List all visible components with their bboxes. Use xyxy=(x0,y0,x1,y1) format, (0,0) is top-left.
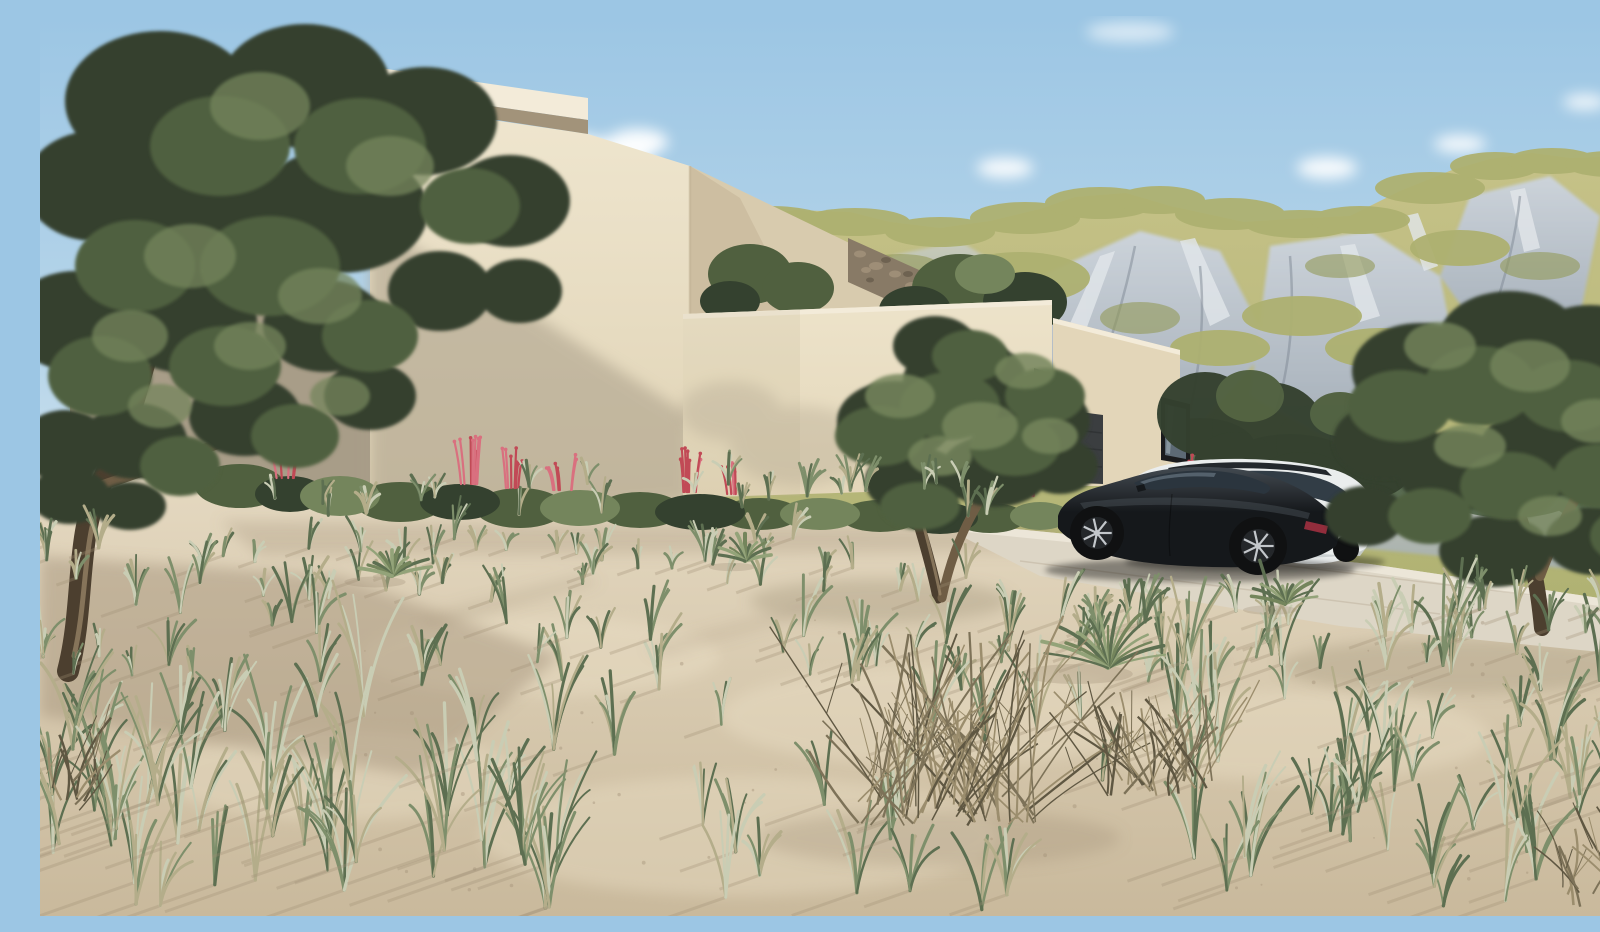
pebble xyxy=(1526,872,1528,874)
pebble xyxy=(838,631,842,635)
pebble xyxy=(774,768,777,771)
pebble xyxy=(617,793,620,796)
pebble xyxy=(1481,672,1485,676)
pebble xyxy=(1312,681,1316,685)
pebble xyxy=(1368,686,1370,688)
pebble xyxy=(990,838,993,841)
cloud xyxy=(1434,135,1486,153)
pebble xyxy=(559,747,562,750)
rendering-canvas xyxy=(40,16,1600,916)
pebble xyxy=(468,888,471,891)
pebble xyxy=(680,662,684,666)
pebble xyxy=(461,792,465,796)
pebble xyxy=(805,685,807,687)
pebble xyxy=(405,870,408,873)
pebble xyxy=(580,711,583,714)
pebble xyxy=(814,619,816,621)
pebble xyxy=(364,753,367,756)
pebble xyxy=(1467,877,1471,881)
cloud xyxy=(1086,22,1174,42)
pebble xyxy=(1470,663,1474,667)
pebble xyxy=(410,711,414,715)
pebble xyxy=(329,691,331,693)
pebble xyxy=(1235,886,1238,889)
pebble xyxy=(1073,804,1077,808)
cloud xyxy=(977,158,1033,178)
pebble xyxy=(1373,837,1375,839)
pebble xyxy=(1471,695,1474,698)
pebble xyxy=(1276,783,1278,785)
pebble xyxy=(707,856,710,859)
pebble xyxy=(374,712,376,714)
pebble xyxy=(378,848,382,852)
pebble xyxy=(1043,853,1047,857)
pebble xyxy=(1261,884,1263,886)
pebble xyxy=(510,884,514,888)
pebble xyxy=(593,801,596,804)
pebble xyxy=(642,861,646,865)
pebble xyxy=(1455,767,1458,770)
pebble xyxy=(953,675,955,677)
pebble xyxy=(1096,758,1098,760)
pebble xyxy=(1367,650,1369,652)
architectural-rendering: 3D architectural rendering of a modern f… xyxy=(40,16,1600,916)
pebble xyxy=(591,722,593,724)
wheel xyxy=(1070,506,1124,560)
cloud xyxy=(1297,157,1357,179)
pebble xyxy=(752,789,755,792)
wheel xyxy=(1229,517,1287,575)
pebble xyxy=(364,650,366,652)
